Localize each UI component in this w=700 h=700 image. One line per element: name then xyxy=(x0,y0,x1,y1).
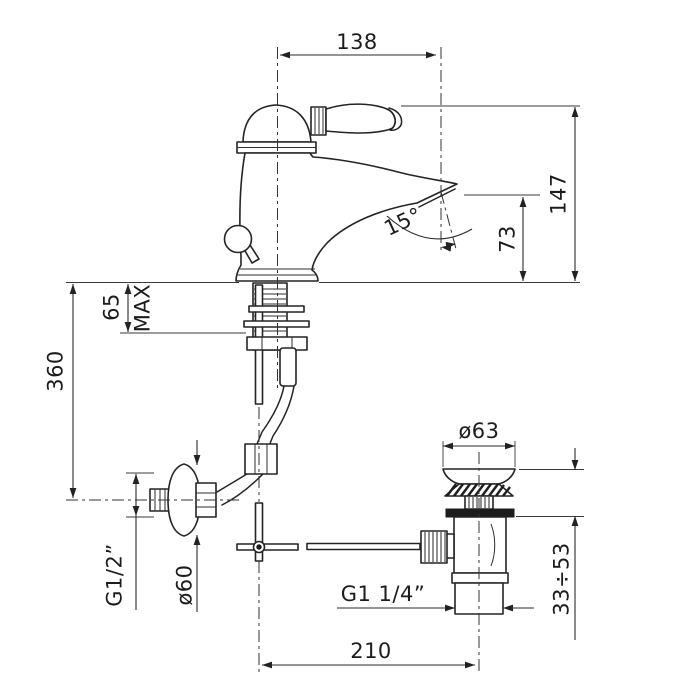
linkage-long-rod xyxy=(307,544,420,550)
lever-handle xyxy=(326,104,395,133)
linkage-pivot-pin xyxy=(257,545,261,549)
dimension-outlet-angle: 15° xyxy=(380,203,472,252)
cap-ring xyxy=(237,142,316,153)
waste-body xyxy=(454,517,506,573)
dim-label-clamping-range: 33÷53 xyxy=(549,542,573,616)
dim-label-max-deck-value: 65 xyxy=(99,293,123,321)
linkage-horizontal-bar xyxy=(237,544,298,550)
hose-end-fitting xyxy=(280,348,296,386)
waste-knurled-side-nut xyxy=(421,531,447,563)
handle-collar xyxy=(311,107,326,135)
washer-plate-2 xyxy=(244,321,309,327)
dim-label-supply-drop: 360 xyxy=(43,350,67,392)
dimension-supply-drop: 360 xyxy=(43,284,76,498)
dim-label-max-deck-suffix: MAX xyxy=(130,284,154,332)
dim-label-escutcheon-diameter: ø60 xyxy=(172,564,196,605)
hose-lower-edge-1 xyxy=(217,474,247,492)
faucet-mixer xyxy=(225,104,458,281)
waste-tail-collar xyxy=(452,573,508,583)
dim-label-spout-projection: 138 xyxy=(336,30,378,54)
dimension-waste-thread: G1 1/4” xyxy=(337,582,534,611)
outlet-tilted-centerline xyxy=(441,192,456,249)
popup-waste-assembly xyxy=(421,469,515,614)
mounting-hardware xyxy=(244,283,309,404)
dimension-supply-thread: G1/2” xyxy=(102,473,154,610)
washer-plate-1 xyxy=(249,306,304,312)
faucet-technical-drawing: 138 147 73 15° 65 MAX 360 xyxy=(0,0,700,700)
dim-label-outlet-height: 73 xyxy=(495,225,519,253)
dimension-spout-projection: 138 xyxy=(280,30,436,58)
hose-hex-coupling xyxy=(245,444,277,474)
popup-knob xyxy=(225,226,252,253)
dimension-overall-height: 147 xyxy=(546,107,578,281)
dim-label-rod-to-waste: 210 xyxy=(350,639,392,663)
dimension-clamping-range: 33÷53 xyxy=(516,448,584,640)
popup-rod-linkage xyxy=(237,503,420,561)
dimension-max-deck-thickness: 65 MAX xyxy=(99,284,154,332)
dim-label-waste-thread: G1 1/4” xyxy=(341,582,426,606)
dim-label-supply-thread: G1/2” xyxy=(102,543,126,606)
dimension-outlet-height: 73 xyxy=(495,197,526,281)
technical-drawing-page: 138 147 73 15° 65 MAX 360 xyxy=(0,0,700,700)
dim-label-waste-flange-diameter: ø63 xyxy=(458,419,499,443)
body-and-spout-silhouette xyxy=(236,153,457,281)
dim-label-overall-height: 147 xyxy=(546,173,570,215)
dimension-rod-to-waste: 210 xyxy=(262,639,475,668)
waste-gasket xyxy=(446,509,514,517)
